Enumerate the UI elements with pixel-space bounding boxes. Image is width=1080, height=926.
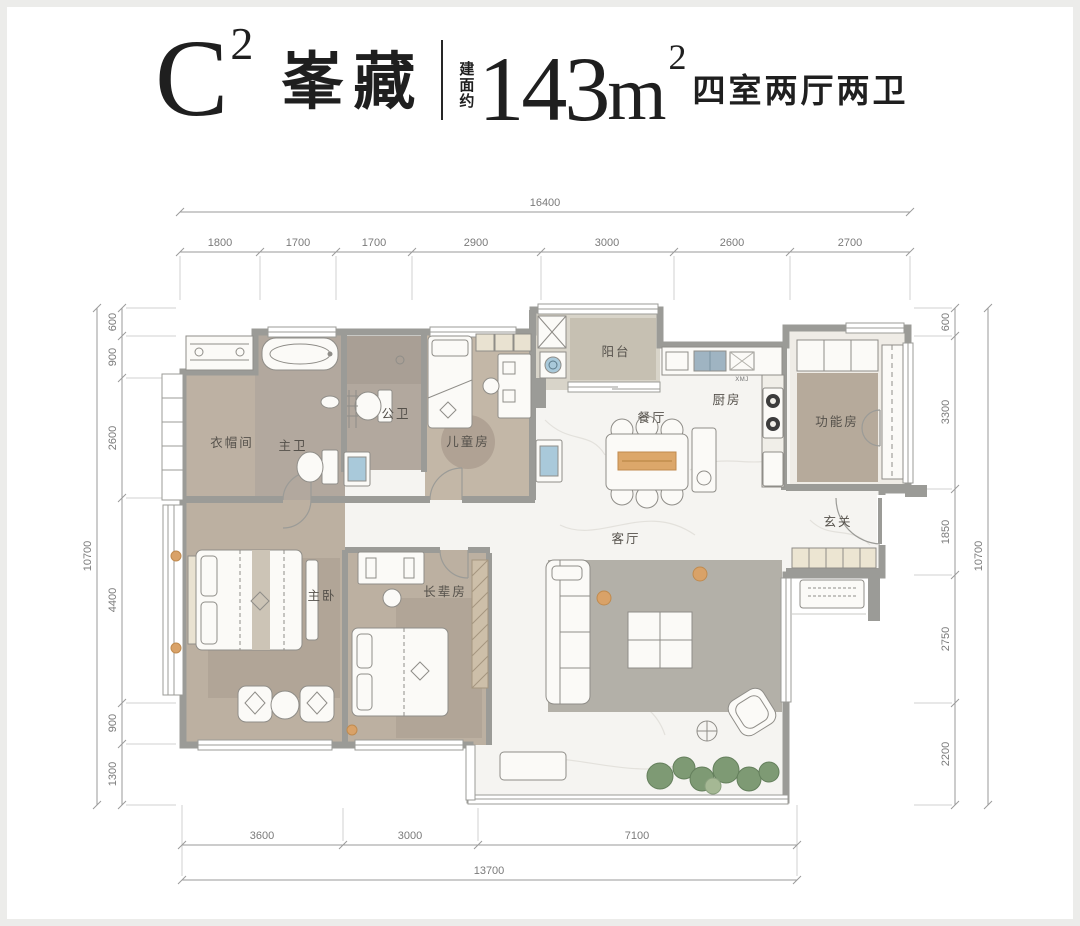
sink-master [321,396,339,408]
dim-right-seg: 2200 [940,742,952,766]
label-master-bath: 主卫 [278,439,307,453]
dim-left-seg: 2600 [107,426,119,450]
bathtub [262,338,338,370]
tv-bench [500,752,566,780]
dim-top-seg: 1700 [362,237,386,249]
label-cloakroom: 衣帽间 [210,435,254,450]
dim-top-seg: 2600 [720,237,744,249]
dim-top-seg: 2700 [838,237,862,249]
side-table [597,591,611,605]
label-children-room: 儿童房 [446,434,490,449]
kitchen-counter [662,347,782,375]
master-bed [188,550,318,650]
dim-top-seg: 1800 [208,237,232,249]
master-chairs [238,686,334,722]
door-mat [792,580,866,614]
side-table [693,567,707,581]
children-bed [428,336,472,428]
dim-left-seg: 4400 [107,588,119,612]
toilet-master [297,450,338,484]
island-counter [692,428,716,492]
floor-plan-canvas: 16400 1800 1700 1700 2900 3000 2600 2700… [7,7,1073,919]
dim-bottom-total: 13700 [474,865,505,877]
washing-machine [540,352,566,378]
label-master-bedroom: 主卧 [307,589,336,603]
label-kitchen: 厨房 [712,392,741,407]
label-elder-room: 长辈房 [423,584,467,599]
dim-left-total: 10700 [82,541,94,572]
dim-left-seg: 1300 [107,762,119,786]
shoe-cabinet [792,548,876,568]
dim-bottom-seg: 3000 [398,830,422,842]
dim-bottom-seg: 7100 [625,830,649,842]
children-closet [476,334,531,351]
label-appliance: XMJ [735,377,749,383]
dining-set [606,416,688,508]
label-entry: 玄关 [823,514,852,529]
utility-shaft [538,316,566,348]
floor-lamp [697,721,717,741]
fridge [763,452,783,486]
dim-top-total: 16400 [530,197,561,209]
dim-left-seg: 600 [107,313,119,331]
dim-left-seg: 900 [107,714,119,732]
label-guest-bath: 公卫 [381,407,410,421]
dim-right-seg: 2750 [940,627,952,651]
dim-right-seg: 3300 [940,400,952,424]
dim-top-seg: 3000 [595,237,619,249]
dim-right-total: 10700 [973,541,985,572]
label-function-room: 功能房 [815,414,859,429]
dim-bottom-seg: 3600 [250,830,274,842]
dim-right-seg: 1850 [940,520,952,544]
label-dining: 餐厅 [637,410,666,425]
cloakroom-closet [186,336,253,370]
sofa [546,560,590,704]
coffee-table [628,612,692,668]
elder-bay-hatch [472,560,488,688]
label-living: 客厅 [611,531,640,546]
label-balcony: 阳台 [601,344,630,359]
dim-left-seg: 900 [107,348,119,366]
floor-plan-page: C 2 峯藏 建面约 143 m 2 四室两厅两卫 [0,0,1080,926]
dim-right-seg: 600 [940,313,952,331]
dim-top-seg: 2900 [464,237,488,249]
elder-bed [352,628,448,716]
dim-top-seg: 1700 [286,237,310,249]
